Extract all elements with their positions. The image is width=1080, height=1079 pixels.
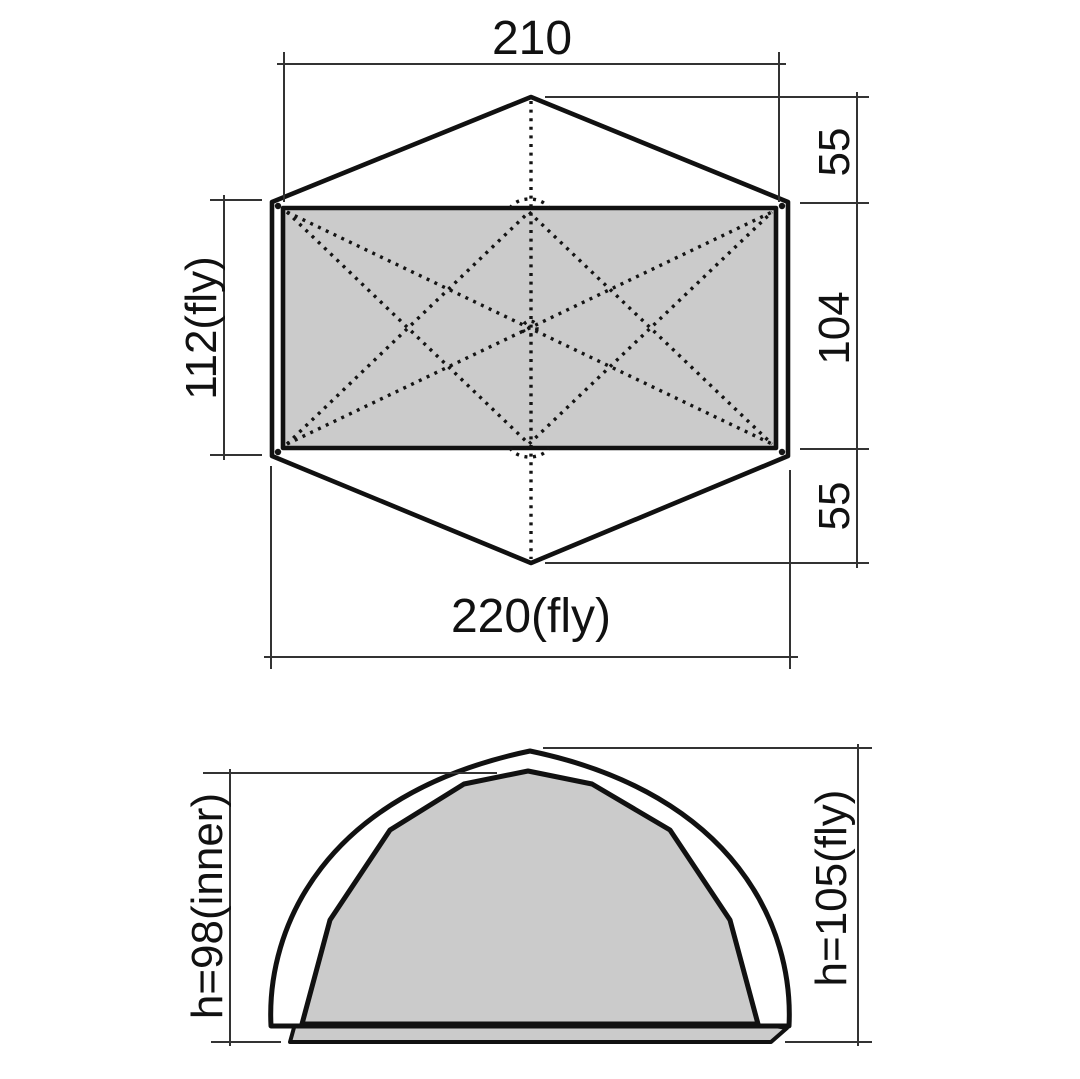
dim-label-fly-height: h=105(fly): [807, 790, 856, 987]
dim-label-right-middle: 104: [810, 291, 859, 364]
diagram-canvas: 210 55 104 55 112(fly) 220(fly): [0, 0, 1080, 1079]
dim-label-inner-height: h=98(inner): [183, 793, 232, 1019]
tent-top-view: 210 55 104 55 112(fly) 220(fly): [177, 12, 869, 669]
tent-dimensions-diagram: 210 55 104 55 112(fly) 220(fly): [0, 0, 1080, 1079]
dimension-left-depth: 112(fly): [177, 195, 262, 460]
inner-tent-dome: [302, 771, 758, 1024]
tent-side-view: h=98(inner) h=105(fly): [183, 744, 872, 1046]
dim-label-left-depth: 112(fly): [177, 256, 226, 399]
dim-label-bottom-width: 220(fly): [451, 590, 611, 643]
dim-label-top-width: 210: [492, 12, 572, 65]
dim-label-right-upper: 55: [810, 128, 859, 177]
dim-label-right-lower: 55: [810, 482, 859, 531]
